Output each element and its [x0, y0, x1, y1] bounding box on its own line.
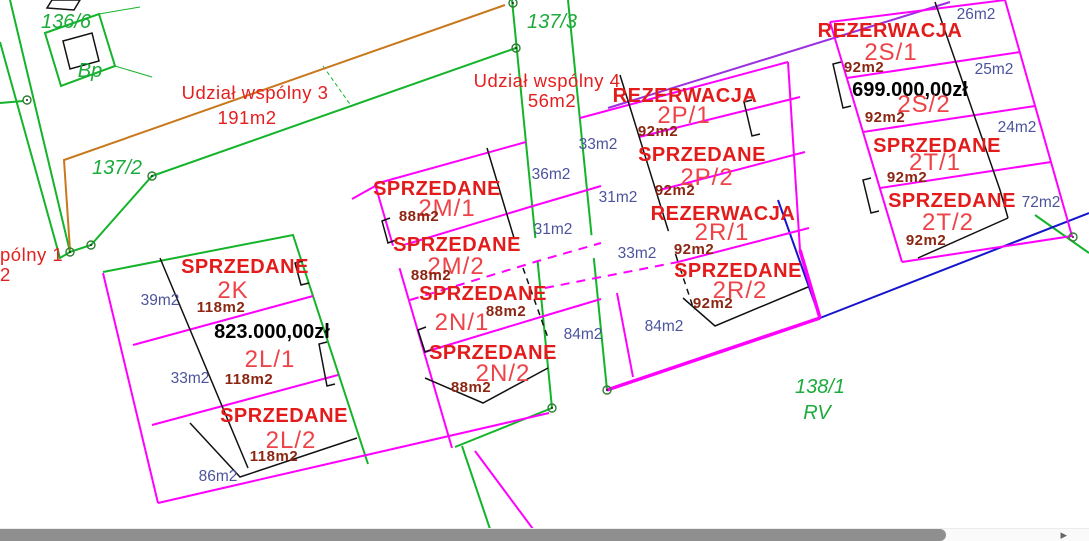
unit-2k-area: 118m2: [197, 299, 245, 316]
plot-map-viewport: 136/6 Bp 137/3 137/2 138/1 RV Udział wsp…: [0, 0, 1089, 541]
parcel-138-1-label: 138/1: [795, 376, 845, 398]
scrollbar-thumb[interactable]: [0, 529, 946, 541]
unit-2m1-labels: SPRZEDANE 2M/1 88m2: [373, 178, 501, 225]
parcel-137-2-label: 137/2: [92, 157, 142, 179]
unit-2n1-labels: SPRZEDANE 2N/1 88m2: [419, 283, 547, 336]
yard-area-label: 36m2: [532, 166, 571, 183]
parcel-rv-label: RV: [803, 402, 832, 424]
unit-2s1-labels: REZERWACJA 2S/1 92m2: [818, 20, 963, 76]
unit-2t2-labels: SPRZEDANE 2T/2 92m2: [888, 190, 1016, 249]
parcel-136-6-label: 136/6: [41, 11, 92, 33]
unit-2s2-area: 92m2: [865, 109, 905, 126]
yard-area-label: 33m2: [579, 136, 618, 153]
common-area-4-name: Udział wspólny 4: [474, 70, 621, 91]
plot-map-canvas: 136/6 Bp 137/3 137/2 138/1 RV Udział wsp…: [0, 0, 1089, 529]
yard-area-label: 26m2: [957, 6, 996, 23]
unit-2l2-labels: SPRZEDANE 2L/2 118m2: [220, 405, 348, 465]
unit-2r2-labels: SPRZEDANE 2R/2 92m2: [674, 260, 802, 312]
yard-area-label: 33m2: [171, 370, 210, 387]
common-area-4-size: 56m2: [528, 90, 576, 111]
unit-2l1-labels: 823.000,00zł 2L/1 118m2: [214, 321, 330, 388]
unit-2k-status: SPRZEDANE: [181, 256, 309, 278]
yard-area-label: 33m2: [618, 245, 657, 262]
unit-2t2-area: 92m2: [906, 232, 946, 249]
unit-2l1-id: 2L/1: [245, 346, 296, 373]
unit-2l2-status: SPRZEDANE: [220, 405, 348, 427]
unit-2t1-area: 92m2: [887, 169, 927, 186]
common-area-3-name: Udział wspólny 3: [182, 82, 329, 103]
unit-2k-labels: SPRZEDANE 2K 118m2: [181, 256, 309, 316]
common-area-1-name: pólny 1: [0, 244, 63, 265]
unit-2p1-area: 92m2: [638, 123, 678, 140]
unit-2p2-status: SPRZEDANE: [638, 144, 766, 166]
yard-area-label: 39m2: [141, 292, 180, 309]
unit-2n1-id: 2N/1: [435, 309, 490, 336]
common-area-1-size: 2: [0, 264, 11, 285]
yard-area-label: 86m2: [199, 468, 238, 485]
yard-area-label: 84m2: [564, 326, 603, 343]
unit-2s2-id: 2S/2: [897, 91, 950, 118]
parcel-bp-label: Bp: [78, 60, 102, 82]
unit-2p2-labels: SPRZEDANE 2P/2 92m2: [638, 144, 766, 199]
unit-2n1-area: 88m2: [486, 303, 526, 320]
scrollbar-right-arrow-icon[interactable]: ▸: [1060, 528, 1067, 540]
yard-area-label: 24m2: [998, 119, 1037, 136]
unit-2p2-area: 92m2: [655, 182, 695, 199]
unit-2l1-area: 118m2: [225, 371, 273, 388]
unit-2l2-area: 118m2: [250, 448, 298, 465]
unit-2r1-area: 92m2: [674, 241, 714, 258]
unit-2m1-area: 88m2: [399, 208, 439, 225]
unit-2s1-area: 92m2: [844, 59, 884, 76]
common-area-3-size: 191m2: [217, 107, 276, 128]
yard-area-label: 31m2: [534, 221, 573, 238]
yard-area-label: 25m2: [975, 61, 1014, 78]
yard-area-label: 84m2: [645, 318, 684, 335]
unit-2m2-area: 88m2: [411, 267, 451, 284]
unit-2n2-area: 88m2: [451, 379, 491, 396]
parcel-137-3-label: 137/3: [527, 11, 577, 33]
yard-area-label: 31m2: [599, 189, 638, 206]
unit-2r2-area: 92m2: [693, 295, 733, 312]
yard-area-label: 72m2: [1022, 194, 1061, 211]
door-niche-icon: [863, 178, 879, 213]
unit-2n1-status: SPRZEDANE: [419, 283, 547, 305]
horizontal-scrollbar[interactable]: ▸: [0, 528, 1089, 541]
unit-2l1-price: 823.000,00zł: [214, 321, 330, 343]
